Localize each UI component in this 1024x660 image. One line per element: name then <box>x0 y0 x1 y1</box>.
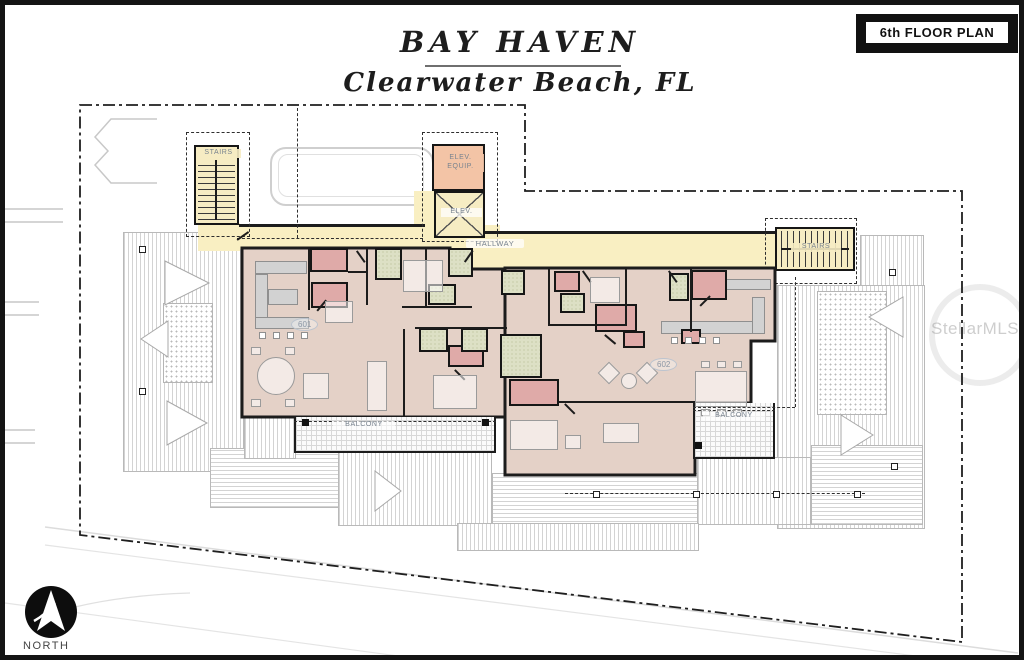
stairs-right-label: STAIRS <box>791 243 841 252</box>
balcony-post <box>695 442 702 449</box>
balcony-left-label: BALCONY <box>333 421 395 430</box>
stairs-left-label: STAIRS <box>196 149 241 158</box>
roof-drain-square <box>593 491 600 498</box>
wall-segment <box>403 329 405 417</box>
furniture-item <box>695 371 747 407</box>
wall-segment <box>625 268 627 326</box>
roof-hatch-right-upper <box>860 235 924 289</box>
furniture-item <box>701 361 710 368</box>
furniture-item <box>285 399 295 407</box>
roof-drain-square <box>773 491 780 498</box>
wall-segment <box>348 271 368 273</box>
furniture-item <box>603 423 639 443</box>
setback-dash <box>693 407 795 408</box>
roof-hatch-bottom-6 <box>457 523 699 551</box>
floor-below-dash <box>237 238 423 239</box>
furniture-item <box>433 375 477 409</box>
tiled-bath <box>501 270 525 295</box>
closet <box>623 331 645 348</box>
wall-segment <box>402 306 472 308</box>
roof-drain-square <box>891 463 898 470</box>
furniture-item <box>251 347 261 355</box>
roof-edge-dash <box>565 493 865 494</box>
door-leaf <box>605 334 617 344</box>
door-leaf <box>564 403 575 414</box>
roof-drain-square <box>854 491 861 498</box>
tiled-bath <box>560 293 585 313</box>
stair-rail <box>215 160 217 220</box>
setback-dash <box>795 277 796 407</box>
north-arrow-icon <box>21 585 81 641</box>
roof-hatch-bottom-5 <box>811 445 923 525</box>
sheet-label: 6th FLOOR PLAN <box>864 20 1010 45</box>
plan-subtitle: Clearwater Beach, FL <box>325 68 715 98</box>
kitchen-counter-601 <box>255 274 268 322</box>
watermark-text: StellarMLS <box>931 319 1019 339</box>
bath-room <box>595 304 637 332</box>
tiled-bath <box>448 248 473 277</box>
roof-hatch-bottom-4 <box>697 457 811 525</box>
unit-number-602: 602 <box>650 358 677 371</box>
wall-segment <box>548 324 627 326</box>
road-tick <box>5 429 35 431</box>
roof-drain-square <box>889 269 896 276</box>
hallway-north-wall <box>239 224 425 227</box>
wall-segment <box>308 248 310 310</box>
furniture-item <box>621 373 637 389</box>
hallway-north-wall <box>485 231 777 234</box>
wall-segment <box>559 401 695 403</box>
bar-stool <box>685 337 692 344</box>
balcony-right-label: BALCONY <box>703 412 765 421</box>
furniture-item <box>565 435 581 449</box>
unit-number-601: 601 <box>291 318 318 331</box>
furniture-item <box>590 277 620 303</box>
furniture-item <box>325 301 353 323</box>
furniture-item <box>510 420 558 450</box>
roof-drain-square <box>693 491 700 498</box>
plan-title: BAY HAVEN <box>305 25 735 59</box>
wall-segment <box>366 248 368 305</box>
bar-stool <box>671 337 678 344</box>
kitchen-island-602 <box>661 321 765 334</box>
setback-dash <box>297 108 298 238</box>
bar-stool <box>273 332 280 339</box>
roof-stipple-left <box>163 303 213 383</box>
bar-stool <box>287 332 294 339</box>
road-tick <box>5 314 39 316</box>
furniture-item <box>733 361 742 368</box>
balcony-post <box>302 419 309 426</box>
furniture-item <box>367 361 387 411</box>
furniture-item <box>403 260 443 292</box>
furniture-item <box>285 347 295 355</box>
roof-hatch-left-balcony-side <box>244 415 296 459</box>
roof-hatch-bottom-2 <box>338 452 492 526</box>
furniture-item <box>251 399 261 407</box>
road-tick <box>5 442 35 444</box>
bath-room <box>554 271 580 292</box>
wall-segment <box>548 268 550 326</box>
road-tick <box>5 208 63 210</box>
kitchen-counter-601 <box>255 261 307 274</box>
driveway-chevron-outline <box>95 119 157 183</box>
bar-stool <box>259 332 266 339</box>
pool-inner-outline <box>278 154 424 197</box>
furniture-item <box>717 361 726 368</box>
floor-plan-sheet: STAIRS ELEV. EQUIP. ELEV. STAIRS <box>0 0 1024 660</box>
bar-stool <box>699 337 706 344</box>
furniture-item <box>257 357 295 395</box>
elevator-label: ELEV. <box>441 208 482 217</box>
hallway-label: HALLWAY <box>466 239 524 248</box>
wall-segment <box>415 327 507 329</box>
tiled-bath <box>419 328 448 352</box>
tiled-bath <box>461 328 488 352</box>
roof-drain-square <box>139 246 146 253</box>
bath-room <box>310 248 348 272</box>
balcony-post <box>482 419 489 426</box>
bar-stool <box>713 337 720 344</box>
wall-segment <box>690 268 692 332</box>
elev-equip-label: ELEV. EQUIP. <box>437 154 484 172</box>
bath-room <box>509 379 559 406</box>
balcony-left-overhang-dash <box>294 421 496 422</box>
balcony-left <box>294 417 496 453</box>
kitchen-island-601 <box>268 289 298 305</box>
north-label: NORTH <box>23 640 69 652</box>
furniture-item <box>598 362 621 385</box>
furniture-item <box>303 373 329 399</box>
pool-outline <box>270 147 434 206</box>
bar-stool <box>301 332 308 339</box>
roof-drain-square <box>139 388 146 395</box>
road-tick <box>5 301 39 303</box>
title-underline <box>425 65 621 67</box>
door-leaf <box>356 250 365 262</box>
tiled-bath <box>500 334 542 378</box>
kitchen-island-602 <box>752 297 765 334</box>
roof-stipple-right <box>817 291 887 415</box>
road-tick <box>5 221 63 223</box>
tiled-bath <box>375 248 402 280</box>
elev-equip-label-line2: EQUIP. <box>447 163 473 170</box>
elev-equip-label-line1: ELEV. <box>449 154 471 161</box>
